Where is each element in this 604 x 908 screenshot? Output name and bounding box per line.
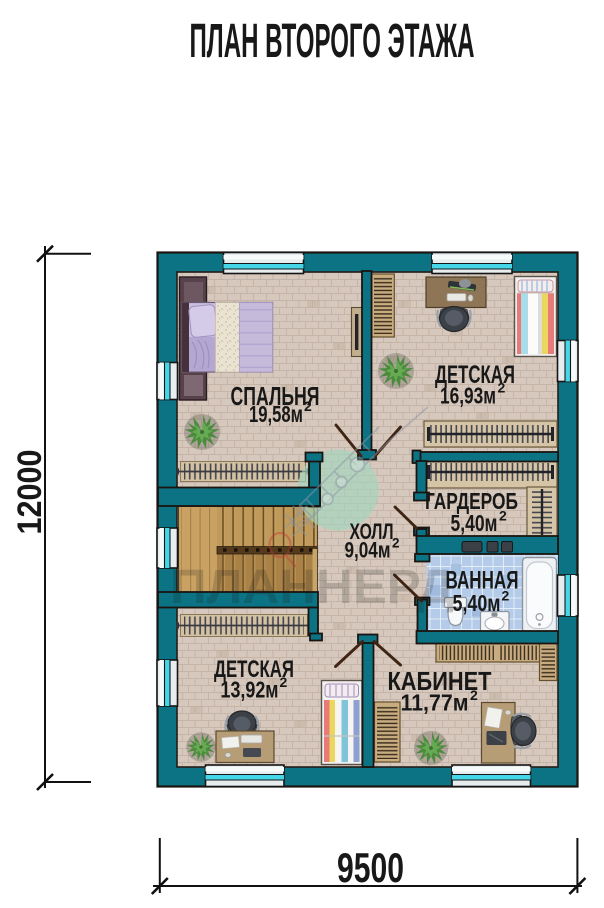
svg-text:ПЛАННЕРД: ПЛАННЕРД [170, 561, 454, 614]
svg-text:2: 2 [392, 536, 400, 551]
svg-text:9,04м: 9,04м [345, 538, 391, 563]
svg-text:12000: 12000 [11, 450, 49, 535]
svg-text:19,58м: 19,58м [249, 401, 303, 427]
svg-text:2: 2 [280, 674, 288, 690]
svg-text:2: 2 [304, 398, 312, 414]
svg-text:5,40м: 5,40м [453, 590, 501, 616]
svg-text:13,92м: 13,92м [221, 677, 279, 703]
svg-text:2: 2 [498, 380, 506, 396]
svg-text:ПЛАН ВТОРОГО ЭТАЖА: ПЛАН ВТОРОГО ЭТАЖА [190, 15, 475, 68]
svg-text:2: 2 [499, 508, 507, 524]
svg-text:5,40м: 5,40м [451, 510, 498, 536]
svg-text:9500: 9500 [337, 844, 404, 891]
svg-text:11,77м: 11,77м [401, 690, 469, 716]
svg-text:2: 2 [502, 588, 510, 604]
svg-text:16,93м: 16,93м [440, 383, 496, 409]
svg-text:2: 2 [470, 687, 478, 703]
